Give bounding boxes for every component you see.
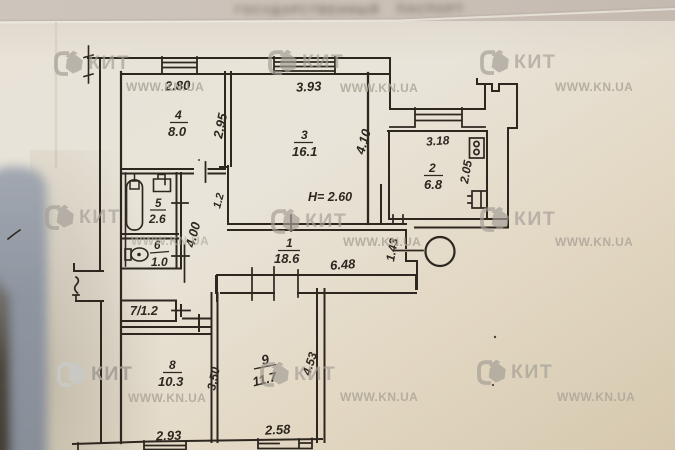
svg-text:6.48: 6.48	[330, 256, 357, 273]
svg-text:КИТ: КИТ	[294, 363, 336, 385]
svg-text:5: 5	[155, 198, 162, 210]
svg-text:КИТ: КИТ	[514, 51, 556, 73]
svg-text:WWW.KN.UA: WWW.KN.UA	[131, 234, 209, 248]
svg-text:6.8: 6.8	[424, 177, 443, 192]
svg-text:4: 4	[174, 108, 182, 122]
svg-text:КИТ: КИТ	[511, 361, 553, 383]
svg-text:3.18: 3.18	[426, 133, 451, 149]
svg-text:WWW.KN.UA: WWW.KN.UA	[128, 391, 206, 405]
svg-text:7/1.2: 7/1.2	[130, 304, 158, 318]
svg-text:WWW.KN.UA: WWW.KN.UA	[555, 80, 633, 94]
svg-text:1.0: 1.0	[151, 255, 168, 269]
svg-text:18.6: 18.6	[274, 251, 300, 266]
svg-text:16.1: 16.1	[292, 144, 317, 159]
svg-text:WWW.KN.UA: WWW.KN.UA	[126, 80, 204, 94]
svg-text:2.58: 2.58	[264, 421, 292, 437]
svg-text:КИТ: КИТ	[91, 363, 133, 385]
svg-text:10.3: 10.3	[158, 374, 184, 389]
svg-text:КИТ: КИТ	[305, 210, 347, 232]
svg-text:КИТ: КИТ	[302, 51, 344, 73]
svg-text:ГОСУДАРСТВЕННЫЙ: ГОСУДАРСТВЕННЫЙ	[235, 4, 380, 17]
svg-text:Н= 2.60: Н= 2.60	[308, 190, 352, 204]
svg-text:WWW.KN.UA: WWW.KN.UA	[343, 235, 421, 249]
svg-text:2.93: 2.93	[155, 428, 183, 444]
svg-text:ПАСПОРТ: ПАСПОРТ	[397, 4, 465, 16]
svg-text:КИТ: КИТ	[514, 208, 556, 230]
svg-text:WWW.KN.UA: WWW.KN.UA	[340, 81, 418, 95]
svg-text:8.0: 8.0	[168, 124, 187, 139]
svg-text:КИТ: КИТ	[88, 52, 130, 74]
svg-text:2: 2	[428, 161, 436, 175]
svg-text:WWW.KN.UA: WWW.KN.UA	[557, 390, 635, 404]
svg-text:3: 3	[301, 128, 308, 142]
svg-text:8: 8	[169, 358, 176, 372]
svg-text:WWW.KN.UA: WWW.KN.UA	[340, 390, 418, 404]
svg-text:1: 1	[286, 236, 293, 250]
svg-text:КИТ: КИТ	[79, 206, 121, 228]
svg-text:2.6: 2.6	[148, 212, 166, 226]
svg-text:3.93: 3.93	[296, 78, 323, 94]
svg-text:WWW.KN.UA: WWW.KN.UA	[555, 235, 633, 249]
